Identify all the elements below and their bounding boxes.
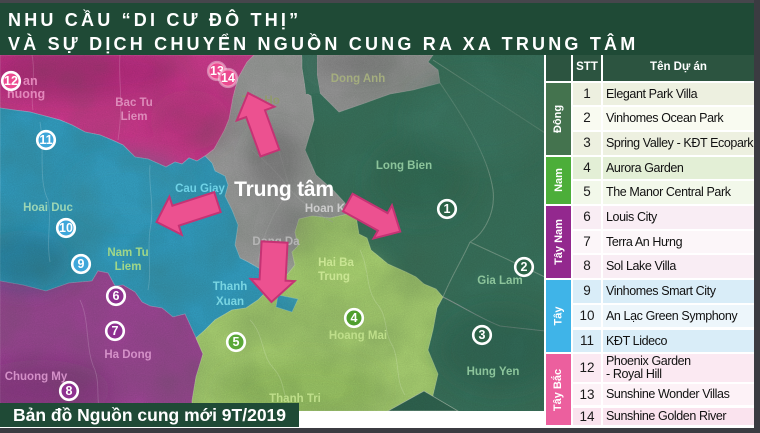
svg-text:12: 12	[4, 74, 18, 88]
svg-text:Liem: Liem	[115, 261, 142, 273]
svg-text:Gia Lam: Gia Lam	[477, 275, 522, 287]
svg-text:Thanh: Thanh	[213, 281, 248, 293]
svg-text:7: 7	[112, 324, 119, 338]
svg-text:Hung Yen: Hung Yen	[467, 366, 520, 378]
svg-text:10: 10	[59, 221, 73, 235]
svg-text:Hoang Mai: Hoang Mai	[329, 330, 387, 342]
svg-text:8: 8	[66, 384, 73, 398]
svg-text:14: 14	[221, 71, 235, 85]
svg-text:1: 1	[444, 202, 451, 216]
svg-text:Hoan K: Hoan K	[305, 203, 346, 215]
svg-text:Trung tâm: Trung tâm	[234, 178, 334, 201]
svg-text:Bac Tu: Bac Tu	[115, 97, 153, 109]
svg-text:Xuan: Xuan	[216, 296, 244, 308]
svg-text:an: an	[23, 74, 38, 88]
svg-text:9: 9	[78, 257, 85, 271]
svg-text:5: 5	[233, 335, 240, 349]
svg-text:11: 11	[39, 133, 52, 147]
svg-text:Long Bien: Long Bien	[376, 160, 432, 172]
svg-text:Nam Tu: Nam Tu	[107, 247, 148, 259]
svg-text:Hoai Duc: Hoai Duc	[23, 202, 73, 214]
svg-text:Cau Giay: Cau Giay	[175, 183, 225, 195]
svg-text:3: 3	[479, 328, 486, 342]
svg-text:Dong Anh: Dong Anh	[331, 73, 386, 85]
svg-text:Hai Ba: Hai Ba	[318, 257, 354, 269]
svg-text:Liem: Liem	[121, 111, 148, 123]
svg-text:Ha Dong: Ha Dong	[104, 349, 151, 361]
svg-text:Trung: Trung	[318, 271, 350, 283]
svg-text:Chuong My: Chuong My	[5, 371, 68, 383]
svg-text:2: 2	[521, 260, 528, 274]
svg-text:4: 4	[351, 311, 358, 325]
svg-text:6: 6	[113, 289, 120, 303]
